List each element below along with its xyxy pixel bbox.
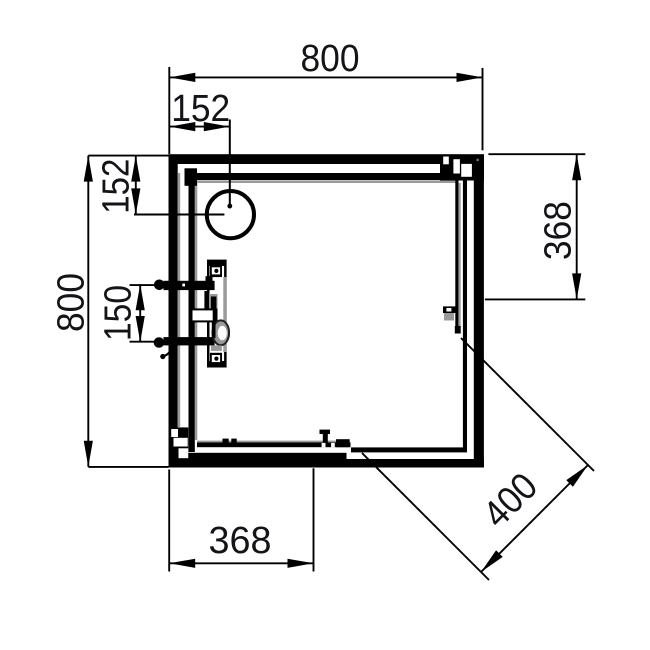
svg-text:368: 368 bbox=[538, 201, 580, 260]
svg-text:368: 368 bbox=[209, 520, 272, 562]
svg-text:152: 152 bbox=[96, 159, 138, 214]
svg-text:150: 150 bbox=[97, 285, 139, 341]
svg-text:152: 152 bbox=[171, 88, 230, 130]
svg-text:800: 800 bbox=[301, 38, 360, 80]
svg-text:800: 800 bbox=[51, 273, 93, 332]
